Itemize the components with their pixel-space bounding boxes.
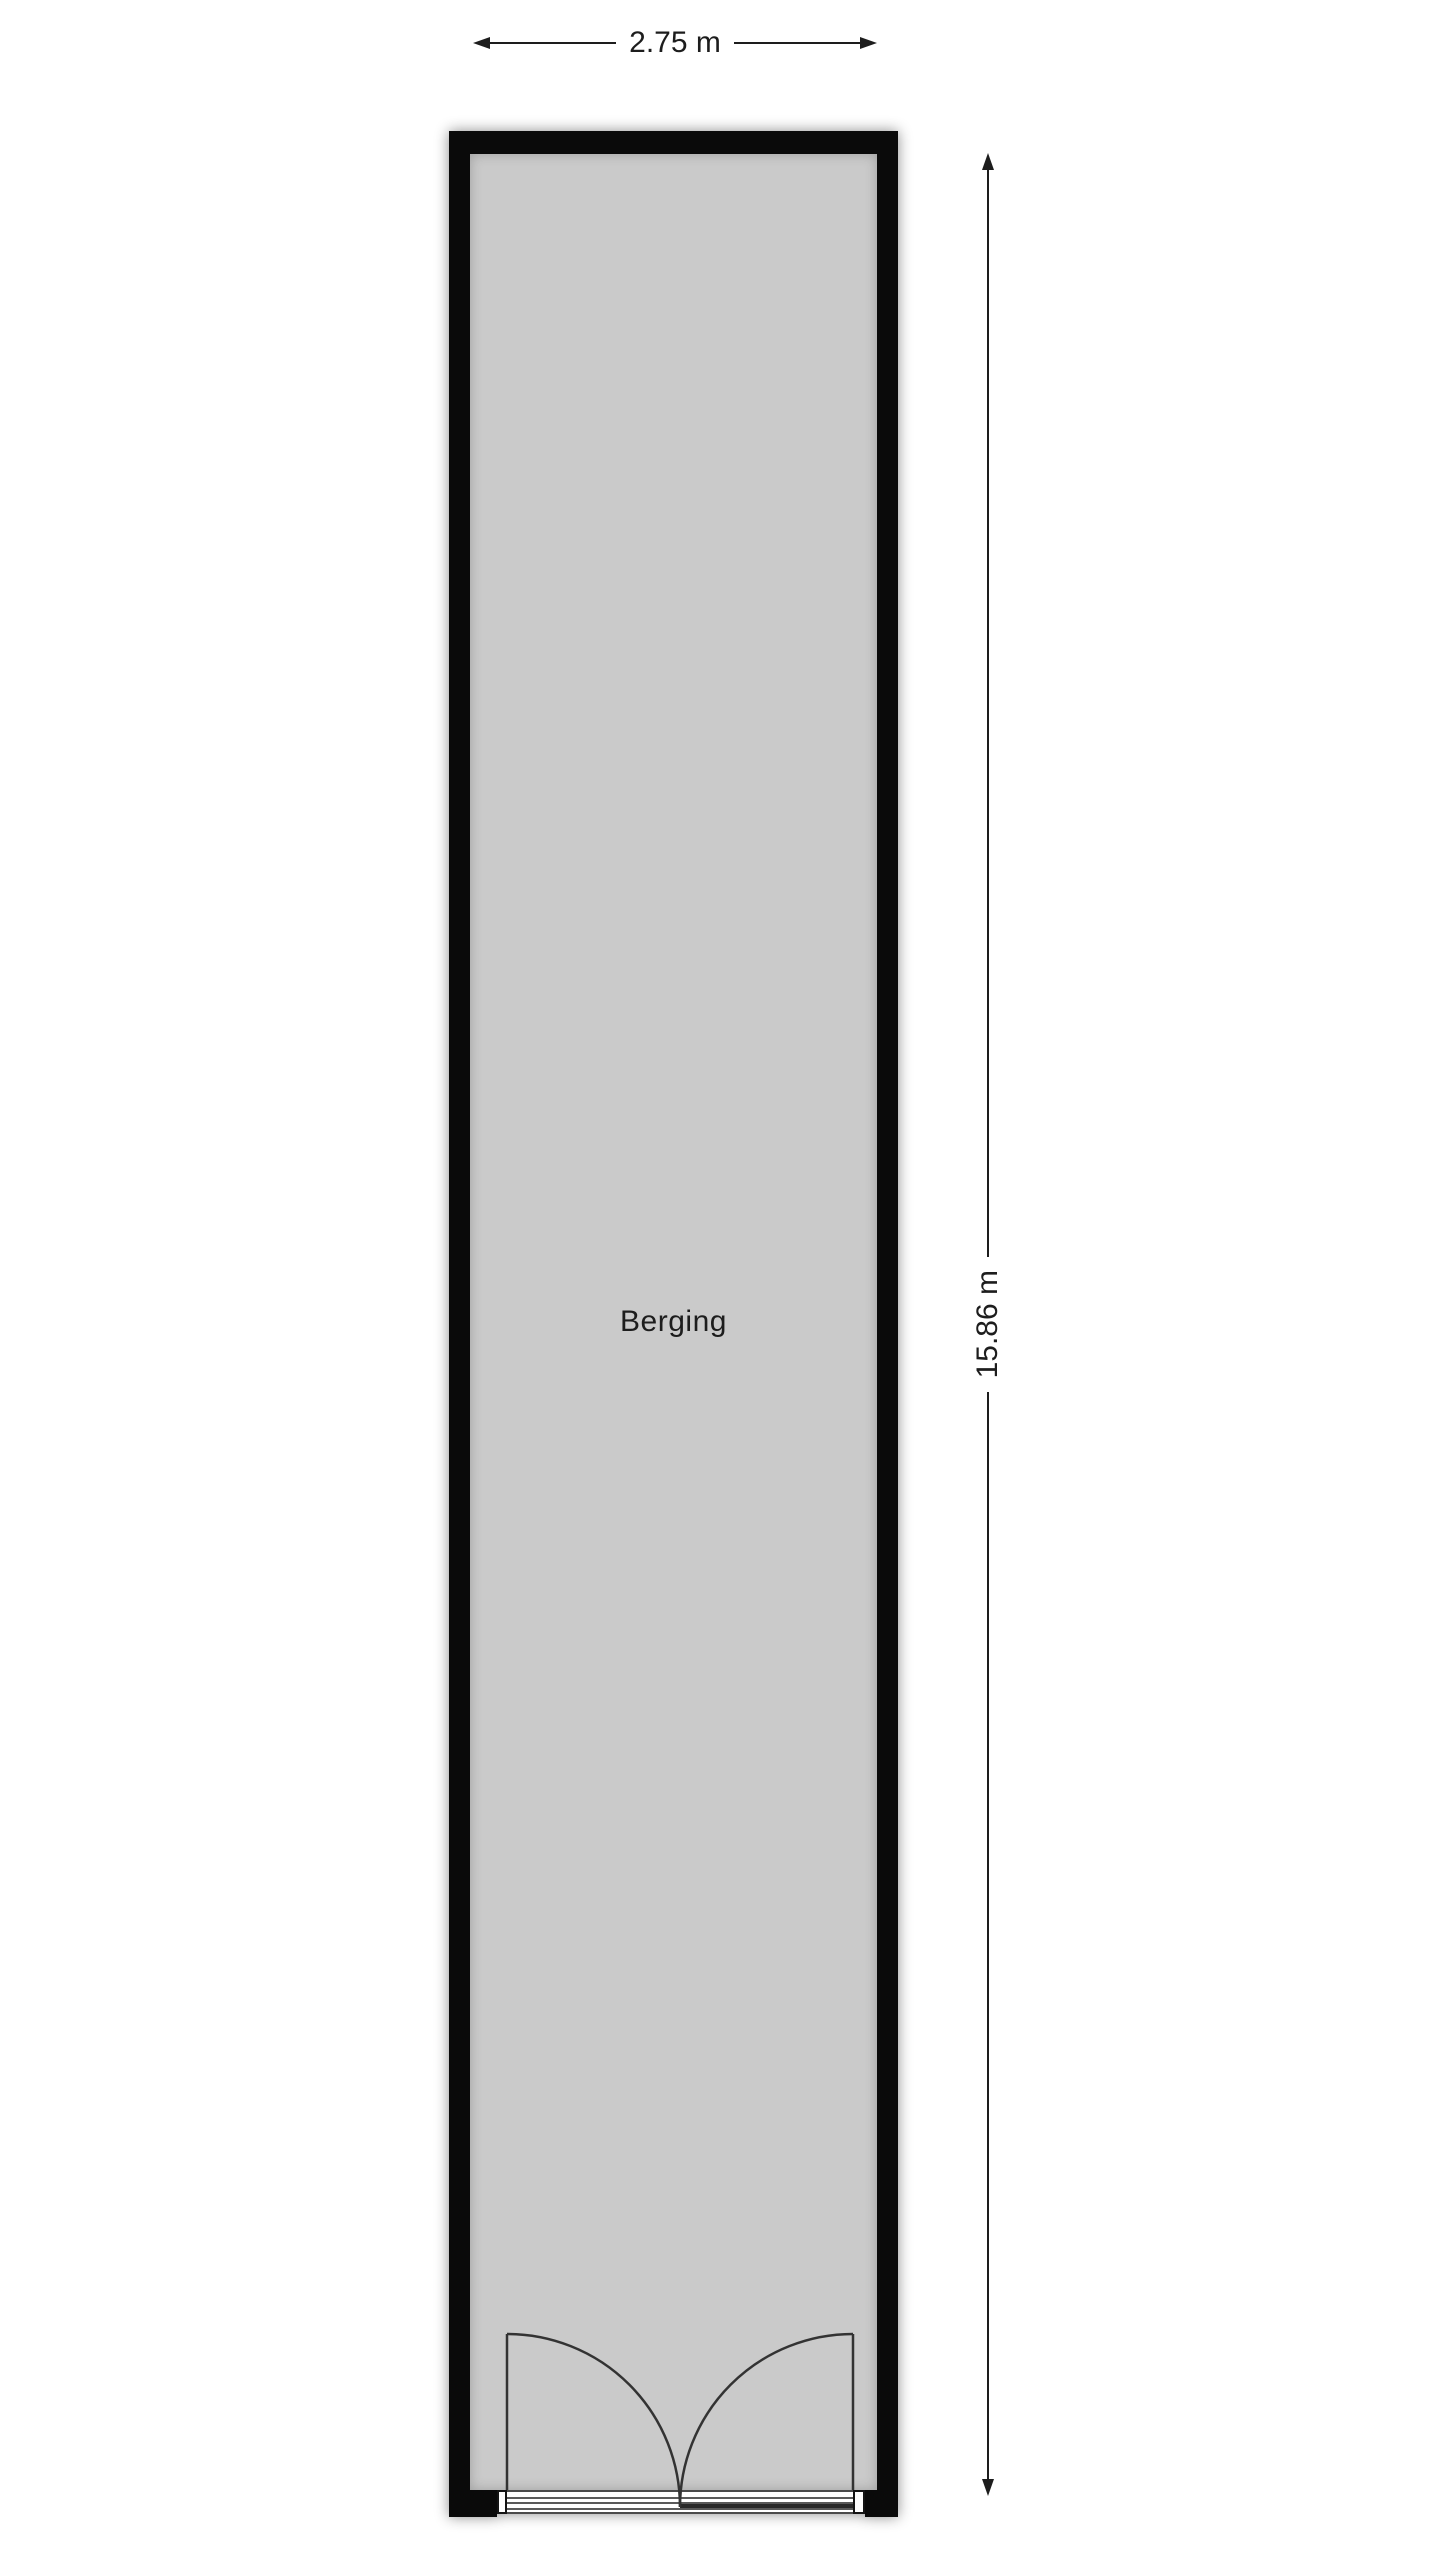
wall-right <box>877 131 898 2517</box>
door-threshold <box>507 2490 853 2514</box>
wall-top <box>449 131 898 154</box>
height-dimension: 15.86 m <box>973 153 1003 2496</box>
height-dimension-label: 15.86 m <box>971 1257 1005 1391</box>
floorplan-canvas: 2.75 m Berging 15.86 m <box>0 0 1440 2560</box>
arrow-up-icon <box>982 153 994 170</box>
dimension-line <box>734 42 860 44</box>
threshold-track <box>680 2504 853 2508</box>
door-jamb-left <box>497 2490 507 2514</box>
room-floor: Berging <box>470 154 877 2490</box>
arrow-down-icon <box>982 2479 994 2496</box>
dimension-line <box>987 170 989 1257</box>
threshold-line <box>507 2508 853 2510</box>
room-label: Berging <box>620 1305 727 1339</box>
threshold-line <box>507 2497 853 2499</box>
dimension-line <box>490 42 616 44</box>
arrow-left-icon <box>473 37 490 49</box>
wall-left <box>449 131 470 2517</box>
wall-bottom-right <box>865 2490 898 2517</box>
door-jamb-right <box>853 2490 865 2514</box>
arrow-right-icon <box>860 37 877 49</box>
width-dimension-label: 2.75 m <box>616 26 734 60</box>
room-outline: Berging <box>449 131 898 2517</box>
width-dimension: 2.75 m <box>473 27 877 59</box>
wall-bottom-left <box>449 2490 497 2517</box>
dimension-line <box>987 1392 989 2479</box>
